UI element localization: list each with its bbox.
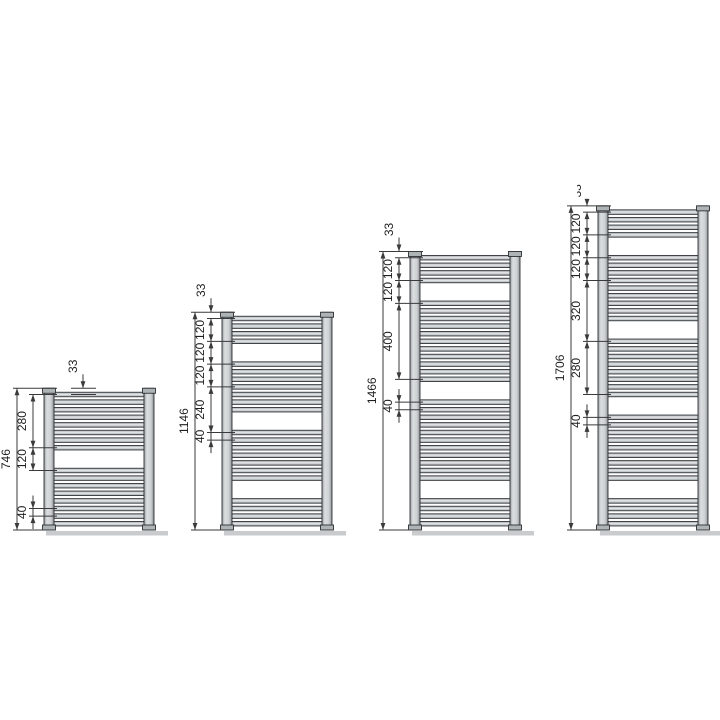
ground-shadow [46, 531, 168, 536]
rail-cap-bottom [321, 525, 334, 530]
ground-shadow [600, 531, 720, 536]
tube [232, 438, 322, 443]
rail-cap-top [697, 206, 710, 211]
tube [232, 369, 322, 374]
dim-label: 120 [569, 213, 583, 233]
dim-label: 120 [15, 449, 29, 469]
radiator-1706: 17063312012012032028040 [553, 184, 720, 536]
tube [232, 468, 322, 473]
tube [608, 385, 698, 390]
tube [608, 271, 698, 276]
ground-shadow [412, 531, 534, 536]
dim-label: 40 [193, 429, 207, 443]
tube [608, 293, 698, 298]
tube [420, 423, 510, 428]
tube [608, 468, 698, 473]
tube [232, 362, 322, 367]
tube [232, 377, 322, 382]
dim-label: 240 [193, 399, 207, 419]
tube [54, 514, 144, 519]
tube [420, 331, 510, 336]
tube [608, 461, 698, 466]
radiator-diagram-svg: 7463328012040114633120120120240401466331… [0, 0, 720, 720]
tube [232, 453, 322, 458]
tube [420, 521, 510, 526]
tube [608, 362, 698, 367]
tube [420, 514, 510, 519]
tube [420, 476, 510, 481]
tube [420, 278, 510, 283]
dimension-chain: 120120120240 [193, 319, 213, 433]
tube [232, 339, 322, 344]
tube [608, 514, 698, 519]
dimension-chain: 280120 [15, 395, 35, 471]
tube [54, 499, 144, 504]
rail-cap-bottom [509, 525, 522, 530]
top-offset-dimension: 33 [382, 222, 401, 251]
detail-dimension: 40 [381, 389, 401, 423]
tube-group [420, 255, 510, 526]
tube [420, 309, 510, 314]
radiator-1146: 11463312012012024040 [177, 283, 346, 535]
tube [420, 506, 510, 511]
tube [54, 400, 144, 405]
side-rail-right [322, 312, 332, 530]
dim-label: 120 [193, 342, 207, 362]
tube [420, 445, 510, 450]
tube [608, 506, 698, 511]
tube [608, 233, 698, 238]
side-rail-left [410, 251, 420, 530]
top-offset-dimension: 33 [66, 359, 96, 394]
tube [420, 339, 510, 344]
tube [608, 445, 698, 450]
tube [232, 400, 322, 405]
tube [420, 461, 510, 466]
rail-cap-bottom [597, 525, 610, 530]
tube [420, 430, 510, 435]
dim-label: 120 [569, 236, 583, 256]
tube [420, 316, 510, 321]
rail-cap-bottom [221, 525, 234, 530]
tube [608, 453, 698, 458]
dim-label: 400 [381, 331, 395, 351]
tube [608, 392, 698, 397]
tube [232, 430, 322, 435]
dim-label: 746 [0, 449, 13, 469]
tube [232, 392, 322, 397]
tube [232, 499, 322, 504]
detail-dimension: 280 [569, 341, 589, 394]
tube [232, 521, 322, 526]
rail-cap-top [321, 312, 334, 317]
tube [608, 430, 698, 435]
tube [232, 461, 322, 466]
side-rail-left [598, 206, 608, 530]
dim-label: 280 [15, 411, 29, 431]
tube [232, 407, 322, 412]
tube [420, 468, 510, 473]
tube [608, 225, 698, 230]
radiator-746: 7463328012040 [0, 359, 168, 535]
rail-cap-top [43, 388, 56, 393]
dim-label: 1466 [365, 377, 379, 404]
tube-group [232, 316, 322, 526]
rail-cap-bottom [697, 525, 710, 530]
tube [608, 415, 698, 420]
dim-label: 1706 [553, 354, 567, 381]
tube [420, 369, 510, 374]
dim-label: 33 [66, 359, 80, 373]
tube [420, 438, 510, 443]
dimension-chain: 120120400 [381, 258, 401, 380]
tube [608, 210, 698, 215]
detail-dimension: 40 [193, 420, 213, 454]
tube [608, 521, 698, 526]
rail-cap-top [143, 388, 156, 393]
dim-label: 40 [381, 399, 395, 413]
tube [420, 354, 510, 359]
tube [608, 377, 698, 382]
dim-label: 33 [194, 283, 208, 297]
tube [608, 286, 698, 291]
tube [420, 324, 510, 329]
tube [232, 476, 322, 481]
dim-label: 33 [382, 222, 396, 236]
rail-cap-top [409, 251, 422, 256]
dim-label: 33 [570, 184, 584, 198]
side-rail-right [144, 388, 154, 530]
tube [608, 316, 698, 321]
tube [232, 324, 322, 329]
tube [54, 483, 144, 488]
tube [608, 438, 698, 443]
tube [608, 354, 698, 359]
tube [608, 309, 698, 314]
tube [54, 438, 144, 443]
tube [608, 278, 698, 283]
tube [608, 339, 698, 344]
tube [54, 415, 144, 420]
tube [420, 377, 510, 382]
tube [54, 392, 144, 397]
dim-label: 120 [193, 320, 207, 340]
tube [608, 369, 698, 374]
tube [608, 255, 698, 260]
detail-dimension: 40 [569, 404, 589, 438]
tube [420, 255, 510, 260]
dim-label: 40 [569, 414, 583, 428]
tube [420, 263, 510, 268]
tube-group [608, 210, 698, 526]
tube [54, 468, 144, 473]
tube [232, 514, 322, 519]
dim-label: 40 [15, 505, 29, 519]
rail-cap-top [509, 251, 522, 256]
tube [420, 415, 510, 420]
tube [420, 400, 510, 405]
dim-label: 120 [381, 282, 395, 302]
rail-cap-top [597, 206, 610, 211]
tube [420, 499, 510, 504]
tube [232, 331, 322, 336]
tube [420, 271, 510, 276]
dim-label: 1146 [177, 408, 191, 434]
tube [54, 445, 144, 450]
top-offset-dimension: 33 [194, 283, 213, 312]
tube [54, 506, 144, 511]
tube [232, 385, 322, 390]
tube [608, 347, 698, 352]
tube [608, 499, 698, 504]
rail-cap-bottom [143, 525, 156, 530]
tube [608, 263, 698, 268]
tube [54, 476, 144, 481]
tube [608, 301, 698, 306]
tube [54, 521, 144, 526]
towel-radiator-dimension-diagram: 7463328012040114633120120120240401466331… [0, 0, 720, 720]
radiator-1466: 14663312012040040 [365, 222, 534, 535]
rail-cap-top [221, 312, 234, 317]
tube [420, 407, 510, 412]
top-offset-dimension: 33 [570, 184, 589, 206]
tube [608, 217, 698, 222]
dim-label: 120 [193, 365, 207, 385]
tube [608, 423, 698, 428]
ground-shadow [224, 531, 346, 536]
dim-label: 320 [569, 301, 583, 321]
tube [232, 316, 322, 321]
side-rail-right [698, 206, 708, 530]
side-rail-right [510, 251, 520, 530]
tube [232, 506, 322, 511]
tube [420, 362, 510, 367]
rail-cap-bottom [43, 525, 56, 530]
dimension-chain: 120120120320 [569, 212, 589, 341]
tube [420, 347, 510, 352]
rail-cap-bottom [409, 525, 422, 530]
tube [232, 445, 322, 450]
tube [420, 301, 510, 306]
tube-group [54, 392, 144, 526]
tube [54, 430, 144, 435]
dim-label: 120 [569, 259, 583, 279]
side-rail-left [222, 312, 232, 530]
dim-label: 120 [381, 259, 395, 279]
dim-label: 280 [569, 358, 583, 378]
tube [54, 423, 144, 428]
tube [54, 491, 144, 496]
tube [608, 476, 698, 481]
tube [54, 407, 144, 412]
tube [420, 453, 510, 458]
